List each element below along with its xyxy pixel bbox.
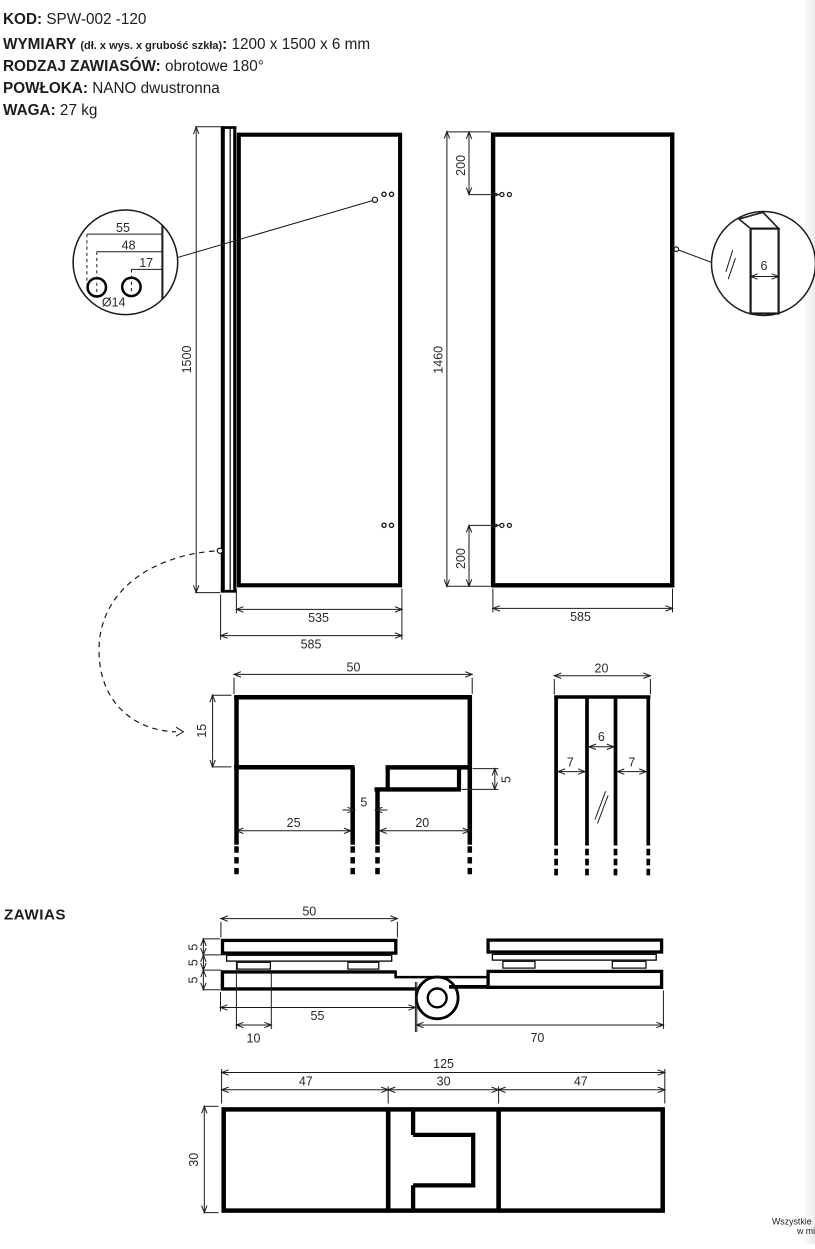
svg-text:50: 50 [302,904,316,918]
svg-text:POWŁOKA: NANO dwustronna: POWŁOKA: NANO dwustronna [3,80,220,97]
svg-text:Ø14: Ø14 [102,295,126,309]
svg-text:200: 200 [454,155,468,176]
svg-text:15: 15 [195,724,209,738]
svg-text:10: 10 [247,1031,261,1045]
svg-text:ZAWIAS: ZAWIAS [4,907,66,924]
svg-text:20: 20 [415,816,429,830]
svg-text:5: 5 [500,776,514,783]
svg-text:KOD: SPW-002 -120: KOD: SPW-002 -120 [3,11,146,28]
svg-text:5: 5 [187,959,201,966]
svg-text:55: 55 [311,1009,325,1023]
svg-text:Wszystkie: Wszystkie [772,1217,812,1227]
svg-text:6: 6 [598,730,605,744]
svg-text:5: 5 [187,976,201,983]
svg-text:535: 535 [308,611,329,625]
svg-text:25: 25 [287,816,301,830]
svg-text:47: 47 [574,1074,588,1088]
svg-text:6: 6 [761,259,768,273]
svg-text:47: 47 [299,1074,313,1088]
svg-text:200: 200 [454,548,468,569]
svg-text:1500: 1500 [180,346,194,374]
svg-text:7: 7 [628,755,635,769]
svg-text:48: 48 [122,238,136,252]
svg-text:17: 17 [139,256,153,270]
svg-text:w mi: w mi [796,1226,815,1236]
svg-text:585: 585 [570,610,591,624]
svg-text:5: 5 [187,944,201,951]
svg-text:125: 125 [433,1057,454,1071]
svg-text:20: 20 [595,661,609,675]
svg-text:30: 30 [437,1074,451,1088]
svg-text:7: 7 [567,755,574,769]
svg-text:50: 50 [347,660,361,674]
svg-text:30: 30 [187,1153,201,1167]
svg-text:55: 55 [116,221,130,235]
svg-text:5: 5 [360,796,367,810]
svg-text:70: 70 [530,1031,544,1045]
svg-text:585: 585 [301,637,322,651]
svg-text:RODZAJ ZAWIASÓW: obrotowe 180°: RODZAJ ZAWIASÓW: obrotowe 180° [3,57,264,75]
svg-text:1460: 1460 [432,346,446,374]
svg-text:WAGA: 27 kg: WAGA: 27 kg [3,102,97,119]
